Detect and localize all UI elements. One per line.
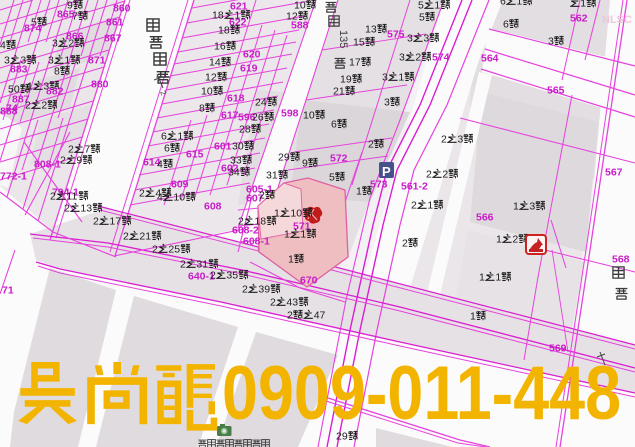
svg-text:10: 10 — [201, 86, 213, 98]
svg-text:1: 1 — [434, 0, 440, 12]
svg-text:3: 3 — [407, 33, 413, 45]
svg-text:14: 14 — [209, 57, 221, 69]
svg-text:861: 861 — [106, 17, 124, 29]
svg-text:2: 2 — [93, 216, 99, 228]
svg-text:874: 874 — [24, 23, 42, 35]
svg-text:2: 2 — [402, 238, 408, 250]
svg-text:2: 2 — [50, 191, 56, 203]
svg-text:601: 601 — [214, 141, 232, 153]
svg-text:568: 568 — [612, 254, 630, 266]
svg-text:572: 572 — [330, 153, 348, 165]
svg-text:562: 562 — [570, 13, 588, 25]
svg-text:17: 17 — [349, 57, 361, 69]
svg-text:74: 74 — [6, 103, 18, 115]
svg-text:2: 2 — [123, 231, 129, 243]
svg-text:618: 618 — [227, 93, 245, 105]
svg-text:1: 1 — [288, 254, 294, 266]
svg-text:574: 574 — [432, 52, 450, 64]
svg-text:1: 1 — [64, 55, 70, 67]
svg-text:2: 2 — [368, 139, 374, 151]
svg-text:7: 7 — [84, 144, 90, 156]
svg-text:1: 1 — [177, 131, 183, 143]
svg-text:2: 2 — [68, 144, 74, 156]
svg-text:4: 4 — [157, 159, 163, 171]
svg-text:882: 882 — [46, 86, 64, 98]
svg-text:1: 1 — [300, 229, 306, 241]
svg-text:3: 3 — [52, 38, 58, 50]
svg-text:1: 1 — [495, 272, 501, 284]
svg-text:10: 10 — [290, 208, 302, 220]
svg-text:2: 2 — [411, 200, 417, 212]
svg-text:12: 12 — [205, 72, 217, 84]
svg-text:3: 3 — [384, 97, 390, 109]
svg-text:10: 10 — [173, 192, 185, 204]
svg-text:2: 2 — [210, 270, 216, 282]
svg-text:883: 883 — [10, 64, 28, 76]
svg-text:575: 575 — [387, 29, 405, 41]
svg-text:871: 871 — [88, 55, 106, 67]
svg-text:3: 3 — [529, 201, 535, 213]
svg-text:5: 5 — [418, 0, 424, 12]
svg-text:621: 621 — [230, 1, 248, 13]
svg-text:5: 5 — [419, 12, 425, 24]
svg-text:620: 620 — [243, 49, 261, 61]
svg-text:1: 1 — [470, 311, 476, 323]
svg-text:3: 3 — [548, 36, 554, 48]
svg-text:1: 1 — [427, 200, 433, 212]
svg-text:2: 2 — [426, 169, 432, 181]
svg-text:9: 9 — [302, 158, 308, 170]
svg-text:565: 565 — [547, 85, 565, 97]
svg-text:19: 19 — [340, 74, 352, 86]
svg-text:5: 5 — [329, 172, 335, 184]
svg-text:30: 30 — [232, 141, 244, 153]
svg-text:13: 13 — [365, 24, 377, 36]
svg-text:2: 2 — [41, 100, 47, 112]
svg-text:1: 1 — [496, 234, 502, 246]
svg-text:1: 1 — [274, 208, 280, 220]
svg-text:21: 21 — [333, 86, 345, 98]
svg-text:2: 2 — [512, 234, 518, 246]
svg-text:11: 11 — [66, 191, 77, 203]
svg-text:34: 34 — [228, 167, 240, 179]
svg-text:2: 2 — [25, 100, 31, 112]
svg-text:670: 670 — [300, 275, 318, 287]
svg-text:15: 15 — [353, 37, 365, 49]
svg-text:867: 867 — [104, 33, 122, 45]
svg-text:18: 18 — [218, 25, 230, 37]
svg-text:71: 71 — [2, 285, 14, 297]
svg-text:3: 3 — [399, 52, 405, 64]
svg-text:566: 566 — [476, 212, 494, 224]
svg-text:26: 26 — [252, 112, 264, 124]
svg-text:4: 4 — [157, 192, 163, 204]
svg-text:1: 1 — [356, 186, 362, 198]
svg-text:2: 2 — [442, 169, 448, 181]
svg-text:18: 18 — [212, 10, 224, 22]
svg-text:135: 135 — [337, 30, 349, 48]
svg-text:2: 2 — [242, 284, 248, 296]
svg-text:6: 6 — [500, 0, 506, 8]
svg-text:561-2: 561-2 — [401, 181, 428, 193]
svg-text:6: 6 — [161, 131, 167, 143]
svg-text:2: 2 — [60, 155, 66, 167]
svg-text:8: 8 — [54, 66, 60, 78]
svg-text:2: 2 — [259, 190, 265, 202]
svg-text:615: 615 — [186, 149, 204, 161]
svg-text:860: 860 — [113, 3, 131, 15]
svg-text:3: 3 — [423, 33, 429, 45]
svg-text:P: P — [382, 164, 391, 179]
svg-text:1: 1 — [513, 201, 519, 213]
svg-text:4: 4 — [0, 40, 6, 52]
svg-text:2: 2 — [139, 188, 145, 200]
svg-text:2: 2 — [270, 297, 276, 309]
svg-text:1: 1 — [479, 272, 485, 284]
svg-text:33: 33 — [230, 155, 242, 167]
svg-text:772-1: 772-1 — [0, 171, 27, 183]
svg-text:6: 6 — [503, 19, 509, 31]
svg-text:865: 865 — [57, 9, 75, 21]
svg-text:0909-011-448: 0909-011-448 — [222, 350, 621, 435]
svg-text:573: 573 — [370, 179, 388, 191]
svg-text:1: 1 — [284, 229, 290, 241]
svg-text:24: 24 — [255, 97, 267, 109]
svg-text:31: 31 — [196, 259, 208, 271]
svg-text:1: 1 — [516, 0, 522, 8]
svg-text:588: 588 — [291, 20, 309, 32]
svg-text:25: 25 — [168, 244, 180, 256]
svg-text:17: 17 — [109, 216, 121, 228]
svg-text:3: 3 — [382, 72, 388, 84]
svg-text:2: 2 — [441, 134, 447, 146]
svg-text:21: 21 — [139, 231, 151, 243]
svg-text:2: 2 — [64, 203, 70, 215]
svg-text:1: 1 — [580, 0, 586, 10]
svg-text:43: 43 — [286, 297, 298, 309]
svg-text:2: 2 — [415, 52, 421, 64]
svg-text:16: 16 — [214, 41, 226, 53]
svg-text:8: 8 — [199, 103, 205, 115]
svg-text:13: 13 — [80, 203, 92, 215]
svg-text:567: 567 — [605, 167, 623, 179]
svg-text:2: 2 — [180, 259, 186, 271]
svg-text:617: 617 — [221, 110, 239, 122]
svg-text:28: 28 — [239, 124, 251, 136]
svg-text:880: 880 — [91, 79, 109, 91]
svg-text:608-1: 608-1 — [243, 236, 270, 248]
svg-text:564: 564 — [481, 53, 499, 65]
svg-text:609: 609 — [171, 179, 189, 191]
svg-text:598: 598 — [281, 108, 299, 120]
svg-text:3: 3 — [457, 134, 463, 146]
svg-text:608: 608 — [204, 201, 222, 213]
svg-text:10: 10 — [303, 110, 315, 122]
svg-text:39: 39 — [258, 284, 270, 296]
svg-text:35: 35 — [226, 270, 238, 282]
svg-text:2: 2 — [287, 310, 293, 322]
svg-text:6: 6 — [164, 143, 170, 155]
svg-text:619: 619 — [240, 63, 258, 75]
svg-text:808-1: 808-1 — [34, 159, 61, 171]
svg-text:47: 47 — [314, 310, 326, 322]
svg-text:29: 29 — [278, 152, 290, 164]
svg-text:9: 9 — [76, 155, 82, 167]
svg-text:6: 6 — [331, 119, 337, 131]
svg-text:2: 2 — [152, 244, 158, 256]
svg-text:1: 1 — [398, 72, 404, 84]
svg-text:NLSC: NLSC — [602, 14, 632, 26]
svg-text:2: 2 — [68, 38, 74, 50]
svg-text:31: 31 — [266, 170, 278, 182]
